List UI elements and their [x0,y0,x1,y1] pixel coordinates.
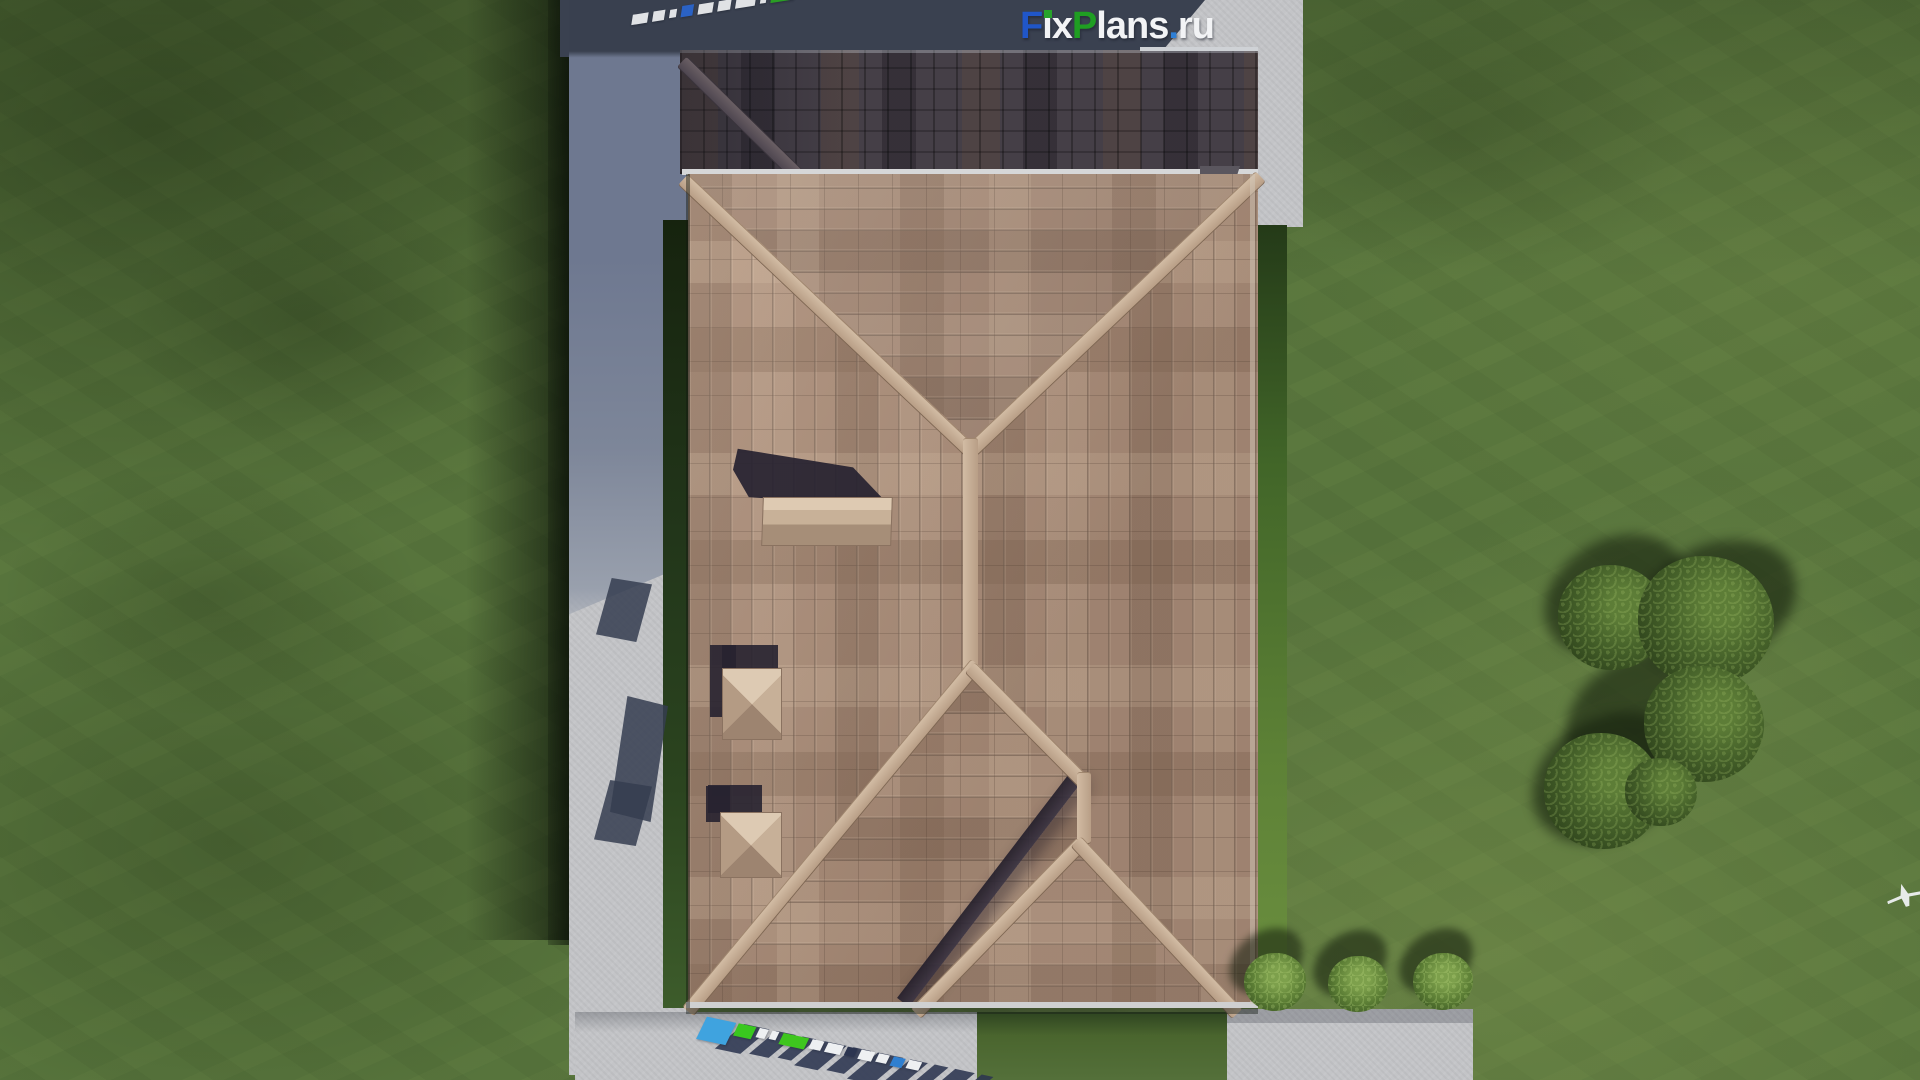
watermark-block [717,0,731,11]
logo-letter: n [1126,5,1148,48]
south-eave-shadow [686,1008,1258,1014]
garden-bush [1413,953,1473,1010]
logo-letter: F [1020,5,1042,48]
watermark-block [844,1047,858,1057]
sunlit-grass-strip-east [1253,225,1287,1008]
watermark-block [889,1056,905,1068]
east-eave-fascia [1250,174,1255,1004]
watermark-block [808,1039,824,1051]
grass-strip-south [977,1012,1227,1080]
logo-letter: u [1192,5,1214,48]
watermark-block [680,4,694,17]
logo-letter: r [1178,5,1192,48]
watermark-block [669,8,677,17]
logo-letter: a [1106,5,1126,48]
garden-bush [1328,956,1388,1012]
ridge-junction-vertical [1077,772,1091,844]
watermark-block [875,1053,890,1064]
logo-letter: x [1052,5,1072,48]
watermark-block [857,1050,875,1062]
chimney-vent-2 [720,812,782,878]
watermark-block [697,1,713,14]
logo-i-dot [1044,10,1052,18]
main-ridge-center [963,438,978,670]
watermark-block [631,12,648,25]
watermark-block [760,0,767,3]
garden-bush [1244,953,1306,1011]
tree-canopy [1625,758,1697,826]
logo-letter: l [1096,5,1106,48]
chimney-vent-1 [722,668,782,740]
watermark-block [652,9,665,21]
logo-letter: . [1168,5,1178,48]
aerial-house-render: FixPlans.ru [0,0,1920,1080]
chimney-long [761,497,893,546]
logo-letter: i [1042,5,1052,48]
watermark-block [733,1023,756,1039]
fixplans-logo: FixPlans.ru [1020,5,1214,48]
west-eave-line [686,174,690,1008]
watermark-block [755,1028,768,1039]
logo-letter: P [1072,5,1096,48]
logo-letter: s [1148,5,1168,48]
watermark-block [824,1042,844,1055]
watermark-block [769,1031,780,1041]
